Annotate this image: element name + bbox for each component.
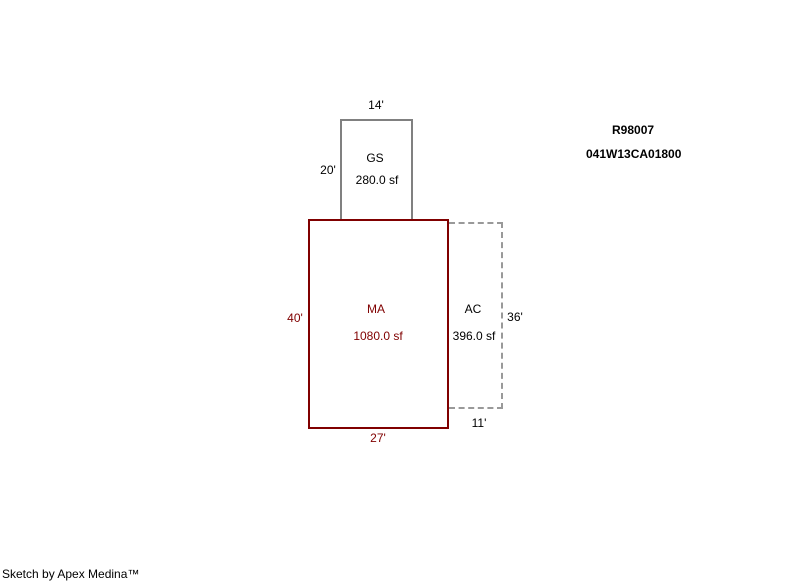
sketch-canvas: 14' 20' GS 280.0 sf MA 1080.0 sf 40' 27'…: [0, 0, 800, 587]
gs-top-dimension-label: 14': [368, 98, 384, 112]
ac-right-dimension-label: 36': [507, 310, 523, 324]
gs-left-dimension-label: 20': [320, 163, 336, 177]
sketch-credit-label: Sketch by Apex Medina™: [2, 567, 139, 581]
parcel-number-label: 041W13CA01800: [586, 147, 681, 161]
gs-section-outline: [340, 119, 413, 221]
record-id-label: R98007: [612, 123, 654, 137]
ac-section-code-label: AC: [465, 302, 482, 316]
gs-section-area-label: 280.0 sf: [356, 173, 399, 187]
ma-left-dimension-label: 40': [287, 311, 303, 325]
ma-bottom-dimension-label: 27': [370, 431, 386, 445]
ma-section-outline: [308, 219, 449, 429]
ac-section-area-label: 396.0 sf: [453, 329, 496, 343]
ma-section-area-label: 1080.0 sf: [353, 329, 402, 343]
ma-section-code-label: MA: [367, 302, 385, 316]
gs-section-code-label: GS: [366, 151, 383, 165]
ac-bottom-dimension-label: 11': [472, 416, 487, 430]
